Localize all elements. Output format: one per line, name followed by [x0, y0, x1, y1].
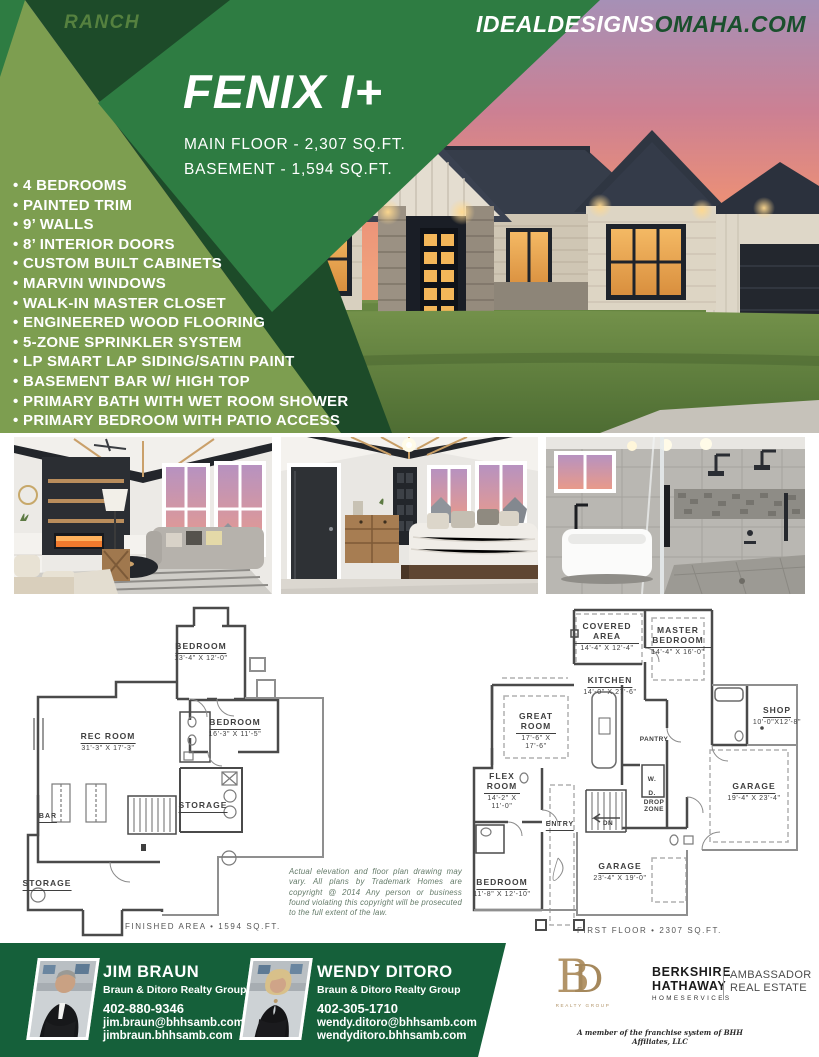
- feature-item: MARVIN WINDOWS: [13, 274, 348, 294]
- feature-item: CUSTOM BUILT CABINETS: [13, 254, 348, 274]
- feature-item: 4 BEDROOMS: [13, 176, 348, 196]
- room-label: FLEX ROOM 14'-2" X 11'-0": [480, 772, 524, 811]
- living-room-photo: [14, 437, 272, 594]
- room-label: STORAGE: [179, 795, 228, 813]
- logo-divider: [723, 967, 724, 1000]
- website-url-domain: OMAHA.COM: [655, 11, 806, 37]
- room-label: DROP ZONE: [639, 798, 669, 816]
- shower-photo: [546, 437, 805, 594]
- brokerage-name-line1: BERKSHIRE: [652, 966, 731, 980]
- basement-area-label: FINISHED AREA • 1594 SQ.FT.: [125, 922, 281, 931]
- agent-website[interactable]: jimbraun.bhhsamb.com: [103, 1030, 247, 1042]
- main-area-label: FIRST FLOOR • 2307 SQ.FT.: [577, 926, 722, 935]
- room-label: BAR: [39, 805, 57, 823]
- room-label: KITCHEN 14'-0" X 27'-6": [583, 670, 636, 697]
- copyright-disclaimer: Actual elevation and floor plan drawing …: [289, 867, 462, 918]
- agent-name: JIM BRAUN: [103, 963, 247, 982]
- bedroom-photo: [281, 437, 538, 594]
- main-floor-plan: COVERED AREA 14'-4" X 12'-4" MASTER BEDR…: [462, 600, 819, 940]
- feature-item: BASEMENT BAR W/ HIGH TOP: [13, 372, 348, 392]
- agent-group: Braun & Ditoro Realty Group: [317, 984, 477, 996]
- feature-item: WALK-IN MASTER CLOSET: [13, 294, 348, 314]
- main-floor-sqft: MAIN FLOOR - 2,307 SQ.FT.: [184, 136, 406, 154]
- feature-item: PAINTED TRIM: [13, 196, 348, 216]
- agent-email[interactable]: wendy.ditoro@bhhsamb.com: [317, 1017, 477, 1029]
- room-label: STORAGE: [23, 873, 72, 891]
- agent-card-jim: JIM BRAUN Braun & Ditoro Realty Group 40…: [103, 963, 247, 1042]
- agent-phone[interactable]: 402-880-9346: [103, 1001, 247, 1016]
- feature-item: LP SMART LAP SIDING/SATIN PAINT: [13, 352, 348, 372]
- agent-photo-wendy: [239, 958, 313, 1040]
- feature-list: 4 BEDROOMS PAINTED TRIM 9’ WALLS 8’ INTE…: [13, 176, 348, 431]
- room-label: BEDROOM 11'-8" X 12'-10": [473, 872, 530, 899]
- website-url-brand: IDEALDESIGNS: [476, 11, 655, 37]
- agent-card-wendy: WENDY DITORO Braun & Ditoro Realty Group…: [317, 963, 477, 1042]
- agent-phone[interactable]: 402-305-1710: [317, 1001, 477, 1016]
- category-label: RANCH: [64, 12, 140, 34]
- room-label: BEDROOM 13'-4" X 12'-0": [174, 636, 227, 663]
- plan-title: FENIX I+: [183, 64, 383, 119]
- agent-website[interactable]: wendyditoro.bhhsamb.com: [317, 1030, 477, 1042]
- agent-email[interactable]: jim.braun@bhhsamb.com: [103, 1017, 247, 1029]
- bd-logo-caption: REALTY GROUP: [548, 1003, 618, 1008]
- room-label: DN: [603, 812, 613, 830]
- feature-item: PRIMARY BEDROOM WITH PATIO ACCESS: [13, 411, 348, 431]
- room-label: MASTER BEDROOM 14'-4" X 16'-0": [643, 626, 713, 657]
- brokerage-name-line3: HOMESERVICES: [652, 995, 731, 1002]
- feature-item: 9’ WALLS: [13, 215, 348, 235]
- room-label: PANTRY: [640, 728, 668, 746]
- room-label: GARAGE 19'-4" X 23'-4": [727, 776, 780, 803]
- website-url[interactable]: IDEALDESIGNSOMAHA.COM: [390, 11, 806, 38]
- franchise-note: A member of the franchise system of BHH …: [560, 1028, 760, 1046]
- agent-photo-jim: [26, 958, 100, 1040]
- ambassador-real-estate-label: AMBASSADOR REAL ESTATE: [730, 969, 812, 995]
- hero-section: RANCH IDEALDESIGNSOMAHA.COM FENIX I+ MAI…: [0, 0, 819, 433]
- room-label: COVERED AREA 14'-4" X 12'-4": [575, 622, 639, 653]
- feature-item: 5-ZONE SPRINKLER SYSTEM: [13, 333, 348, 353]
- berkshire-hathaway-logo: BERKSHIRE HATHAWAY HOMESERVICES: [652, 966, 731, 1002]
- feature-item: PRIMARY BATH WITH WET ROOM SHOWER: [13, 392, 348, 412]
- agent-group: Braun & Ditoro Realty Group: [103, 984, 247, 996]
- room-label: SHOP 10'-0"X12'-8": [753, 700, 801, 727]
- room-label: GREAT ROOM 17'-6" X 17'-6": [514, 712, 558, 751]
- room-label: REC ROOM 31'-3" X 17'-3": [81, 726, 136, 753]
- room-label: ENTRY: [546, 813, 574, 831]
- room-label: BEDROOM 16'-3" X 11'-5": [209, 712, 262, 739]
- room-label: GARAGE 23'-4" X 19'-0": [593, 856, 646, 883]
- flyer-page: RANCH IDEALDESIGNSOMAHA.COM FENIX I+ MAI…: [0, 0, 819, 1057]
- bd-logo-letter-d: D: [573, 960, 603, 998]
- brokerage-name-line2: HATHAWAY: [652, 980, 731, 994]
- agent-name: WENDY DITORO: [317, 963, 477, 982]
- feature-item: ENGINEERED WOOD FLOORING: [13, 313, 348, 333]
- feature-item: 8’ INTERIOR DOORS: [13, 235, 348, 255]
